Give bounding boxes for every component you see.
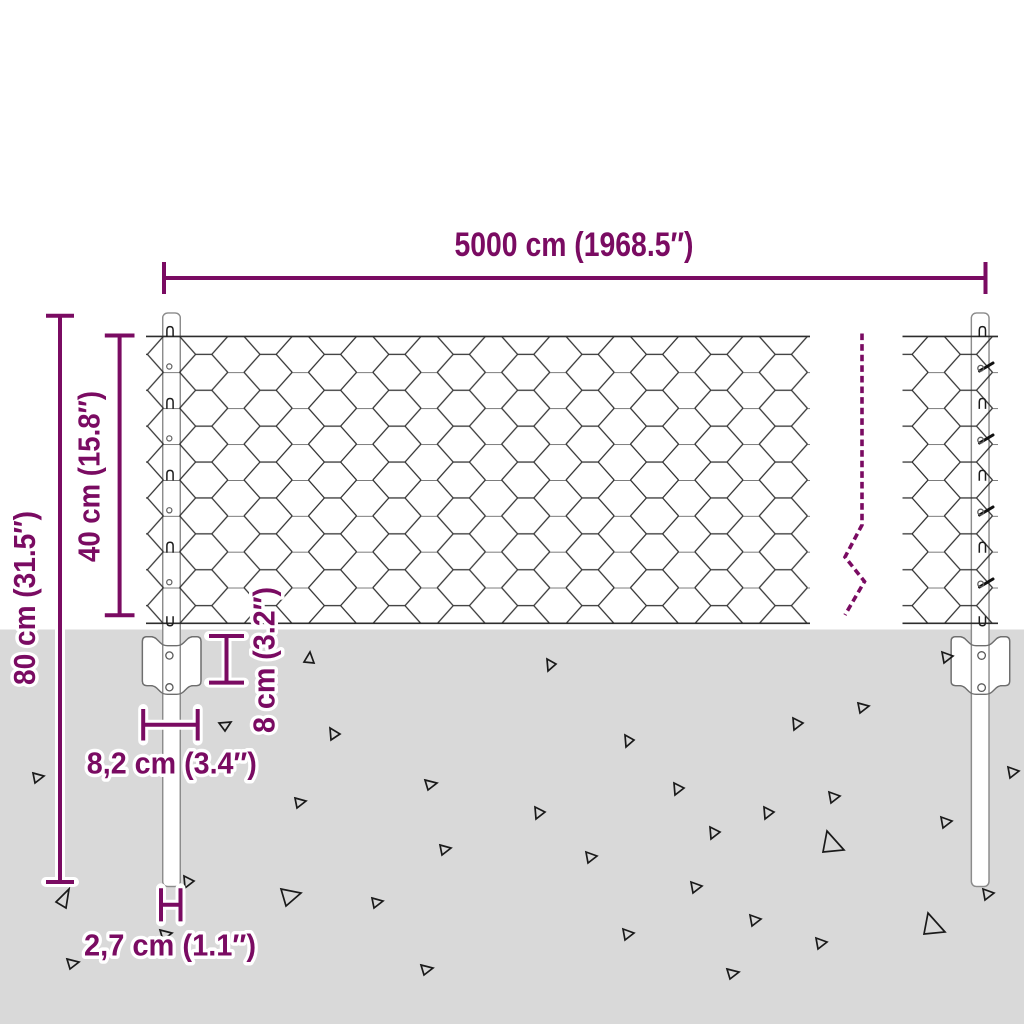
svg-text:8 cm (3.2″): 8 cm (3.2″)	[247, 587, 282, 733]
svg-text:5000 cm (1968.5″): 5000 cm (1968.5″)	[455, 226, 694, 264]
svg-text:2,7 cm (1.1″): 2,7 cm (1.1″)	[84, 927, 256, 962]
svg-text:80 cm (31.5″): 80 cm (31.5″)	[7, 511, 42, 685]
svg-text:8,2 cm (3.4″): 8,2 cm (3.4″)	[87, 745, 257, 780]
svg-text:40 cm (15.8″): 40 cm (15.8″)	[72, 391, 107, 562]
